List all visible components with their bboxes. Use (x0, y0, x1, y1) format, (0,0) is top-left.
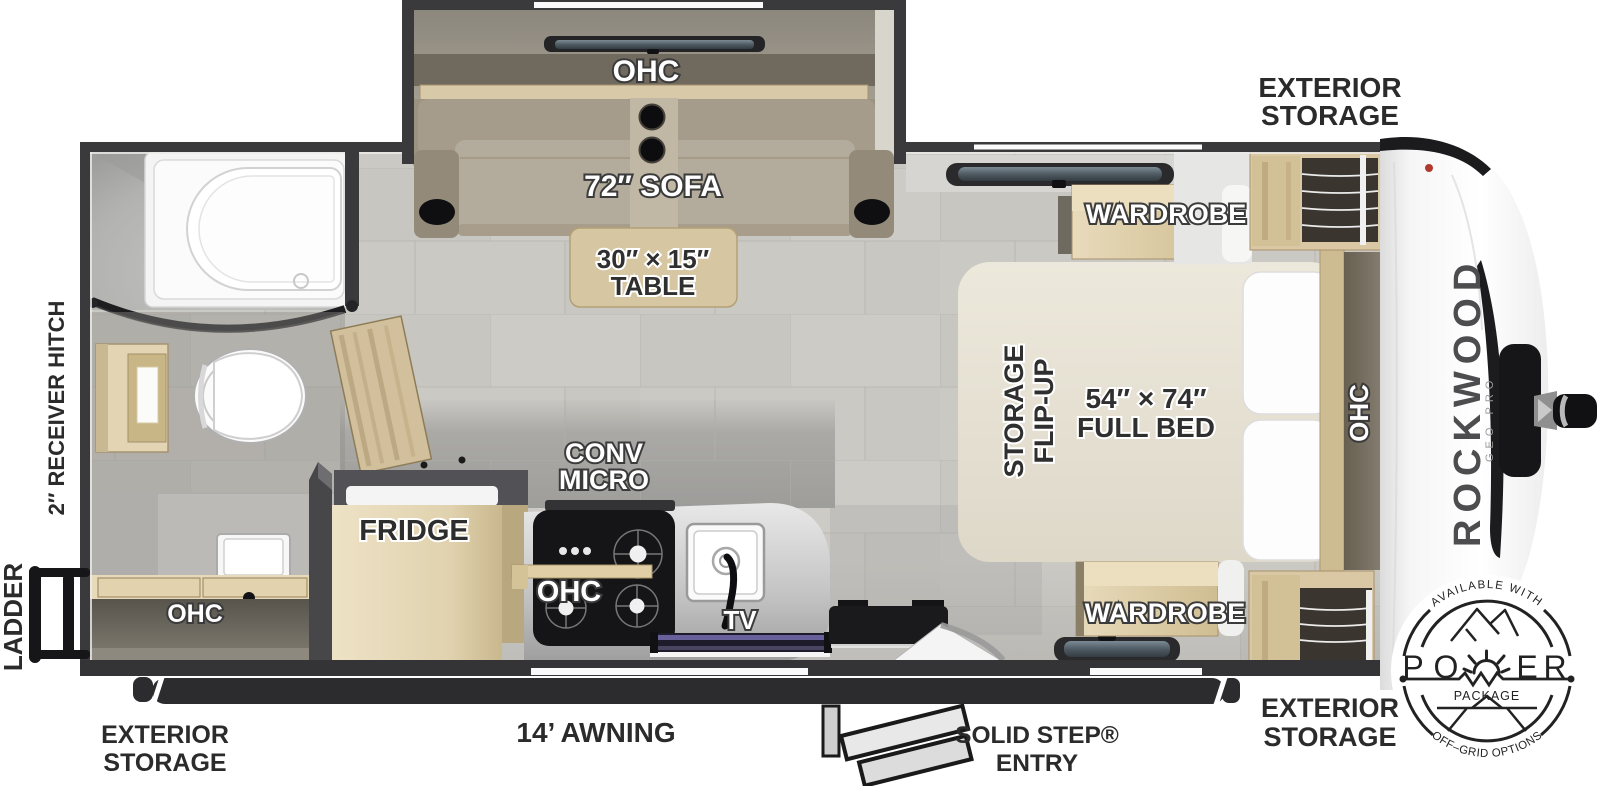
svg-text:FULL BED: FULL BED (1077, 412, 1215, 443)
svg-text:14’ AWNING: 14’ AWNING (516, 717, 675, 748)
svg-text:OHC: OHC (167, 600, 223, 628)
svg-text:EXTERIOR: EXTERIOR (1258, 72, 1401, 103)
svg-text:STORAGE: STORAGE (1263, 722, 1396, 752)
svg-text:EXTERIOR: EXTERIOR (1261, 693, 1399, 723)
svg-text:STORAGE: STORAGE (999, 344, 1029, 477)
svg-text:MICRO: MICRO (559, 465, 649, 495)
svg-text:OHC: OHC (537, 576, 602, 608)
svg-text:TABLE: TABLE (611, 271, 696, 301)
svg-text:WARDROBE: WARDROBE (1086, 199, 1247, 229)
svg-text:2″ RECEIVER HITCH: 2″ RECEIVER HITCH (44, 301, 69, 516)
svg-text:OHC: OHC (1344, 384, 1374, 442)
svg-text:72″ SOFA: 72″ SOFA (584, 170, 722, 203)
svg-text:ROCKWOOD: ROCKWOOD (1447, 257, 1489, 547)
svg-text:ENTRY: ENTRY (996, 750, 1078, 777)
svg-text:STORAGE: STORAGE (1261, 100, 1399, 131)
svg-text:CONV: CONV (565, 438, 643, 468)
svg-text:FLIP-UP: FLIP-UP (1029, 359, 1059, 464)
svg-text:FRIDGE: FRIDGE (359, 515, 469, 547)
svg-text:SOLID STEP®: SOLID STEP® (955, 722, 1119, 749)
svg-text:WARDROBE: WARDROBE (1085, 598, 1246, 628)
svg-text:LADDER: LADDER (0, 563, 28, 672)
svg-text:30″ × 15″: 30″ × 15″ (597, 244, 709, 274)
svg-text:54″ × 74″: 54″ × 74″ (1085, 383, 1206, 414)
svg-text:EXTERIOR: EXTERIOR (101, 721, 229, 749)
svg-text:OHC: OHC (613, 55, 680, 88)
svg-text:STORAGE: STORAGE (103, 749, 226, 777)
svg-text:TV: TV (723, 605, 757, 635)
svg-text:GEO PRO: GEO PRO (1484, 376, 1496, 462)
